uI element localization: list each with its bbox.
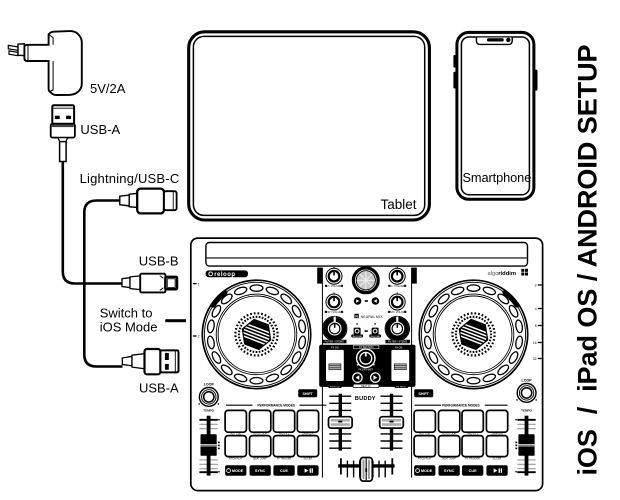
svg-text:BACK: BACK	[362, 289, 370, 293]
svg-text:reloop: reloop	[214, 272, 235, 278]
svg-text:SHIFT: SHIFT	[303, 392, 314, 396]
svg-text:FX HOLD: FX HOLD	[330, 386, 340, 388]
svg-text:SHIFT: SHIFT	[419, 392, 430, 396]
svg-text:BEAT JUMP: BEAT JUMP	[253, 458, 267, 461]
svg-text:SLICER: SLICER	[304, 458, 313, 461]
svg-text:iOS Mode: iOS Mode	[100, 320, 158, 335]
svg-text:PERFORMANCE MODES: PERFORMANCE MODES	[442, 404, 480, 408]
svg-text:riddim: riddim	[498, 271, 516, 277]
svg-text:FX HOLD: FX HOLD	[396, 386, 406, 388]
svg-text:FILTER / STEMS: FILTER / STEMS	[388, 341, 407, 344]
svg-text:4: 4	[535, 307, 537, 311]
svg-text:FX TRIGGER: FX TRIGGER	[465, 458, 480, 461]
svg-text:BEAT FX: BEAT FX	[361, 385, 371, 388]
svg-text:FILTER / STEMS: FILTER / STEMS	[325, 341, 344, 344]
svg-text:SEQ.ONE: SEQ.ONE	[370, 336, 380, 338]
svg-text:USB-B: USB-B	[139, 254, 179, 269]
svg-text:Smartphone: Smartphone	[463, 170, 532, 185]
svg-text:2: 2	[535, 284, 537, 288]
svg-text:CUE: CUE	[280, 469, 288, 473]
svg-text:LOOP: LOOP	[522, 379, 533, 383]
svg-text:5V/2A: 5V/2A	[90, 81, 126, 96]
svg-text:PITCH PLAY: PITCH PLAY	[418, 458, 432, 461]
svg-text:FX ON: FX ON	[395, 346, 403, 349]
svg-text:FX DRY/WET: FX DRY/WET	[358, 368, 373, 371]
svg-text:NEURAL MIX: NEURAL MIX	[361, 315, 384, 319]
svg-text:TEMPO: TEMPO	[203, 408, 214, 412]
svg-text:iOS / iPad OS / ANDROID SETU: iOS / iPad OS / ANDROID SETUP	[573, 44, 603, 475]
svg-text:LOW / VOLUME: LOW / VOLUME	[388, 310, 407, 314]
svg-text:16: 16	[533, 341, 537, 345]
svg-text:MODE: MODE	[232, 469, 244, 473]
svg-text:LOW / VOLUME: LOW / VOLUME	[324, 310, 343, 314]
svg-text:PITCH PLAY: PITCH PLAY	[229, 458, 243, 461]
svg-text:USB-A: USB-A	[139, 381, 179, 396]
svg-text:SEQ.ONE: SEQ.ONE	[352, 336, 362, 338]
svg-text:LOOP: LOOP	[204, 383, 215, 387]
svg-text:Switch to: Switch to	[100, 306, 153, 321]
svg-text:CUE: CUE	[469, 469, 477, 473]
svg-text:BEAT JUMP: BEAT JUMP	[442, 458, 456, 461]
svg-text:SYNC: SYNC	[444, 469, 455, 473]
svg-text:FX ON: FX ON	[331, 346, 339, 349]
svg-text:MODE: MODE	[421, 469, 433, 473]
svg-text:algo: algo	[488, 271, 499, 277]
svg-text:Lightning/USB-C: Lightning/USB-C	[80, 171, 180, 186]
svg-text:FX TRIGGER: FX TRIGGER	[277, 458, 292, 461]
svg-text:USB-A: USB-A	[80, 122, 120, 137]
svg-text:SLICER: SLICER	[493, 458, 502, 461]
svg-text:8: 8	[535, 324, 537, 328]
svg-text:BUDDY: BUDDY	[355, 396, 376, 402]
svg-text:32: 32	[533, 357, 537, 361]
svg-text:Tablet: Tablet	[381, 197, 417, 212]
svg-text:2: 2	[198, 335, 200, 339]
svg-text:1: 1	[198, 282, 200, 286]
svg-text:HI / VOLUME: HI / VOLUME	[326, 284, 342, 288]
svg-text:HI / VOLUME: HI / VOLUME	[389, 284, 405, 288]
svg-text:TEMPO: TEMPO	[521, 408, 532, 412]
svg-text:SYNC: SYNC	[255, 469, 266, 473]
svg-text:PERFORMANCE MODES: PERFORMANCE MODES	[257, 404, 295, 408]
